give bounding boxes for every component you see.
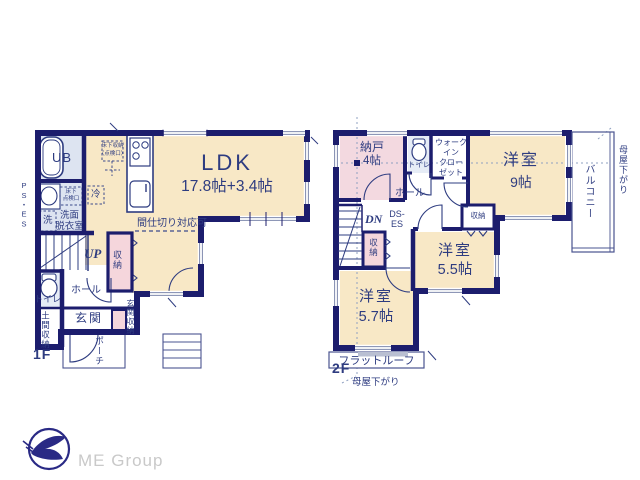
- stairs-2f: [338, 207, 362, 266]
- toilet-icon-2f: [412, 139, 426, 161]
- label-laundry: 洗: [43, 216, 53, 226]
- label-room57-size: 5.7帖: [345, 310, 407, 325]
- label-closet-1f: 収納: [112, 250, 121, 270]
- label-underfloor-storage-2: （点検口）: [98, 151, 127, 158]
- label-unit-bath: UB: [52, 151, 80, 164]
- entrance-storage-box: [112, 310, 126, 331]
- label-stairs-down: DN: [365, 213, 382, 225]
- floor1-tag: 1F: [33, 347, 51, 361]
- label-room9-name: 洋室: [490, 153, 552, 169]
- room55-door-arc: [418, 205, 442, 229]
- label-underfloor-storage-1: 床下収納: [98, 143, 127, 150]
- label-hall-1f: ホール: [68, 286, 104, 296]
- label-toilet-2f: トイレ: [405, 161, 433, 169]
- label-wic-1: ウォーク: [433, 138, 469, 148]
- label-eaves-right: 母屋下がり: [618, 145, 627, 195]
- label-ldk-name: LDK: [172, 152, 282, 174]
- label-wic-2: イン: [433, 148, 469, 158]
- label-stairs-up: UP: [84, 247, 101, 260]
- label-wic-3: クロー: [433, 158, 469, 168]
- label-closet-2f: 収納: [369, 238, 378, 257]
- label-partition-note: 間仕切り対応可: [137, 219, 207, 229]
- label-wic-4: ゼット: [433, 168, 469, 178]
- label-washroom-2: 脱衣室: [53, 221, 86, 232]
- bird-icon: [31, 436, 66, 460]
- company-logo-icon: [23, 429, 69, 469]
- label-eaves-bottom: 母屋下がり: [352, 378, 400, 388]
- label-porch: ポーチ: [94, 336, 103, 366]
- label-hall-2f: ホール: [392, 189, 428, 199]
- label-closet-9jo: 収納: [464, 212, 492, 220]
- label-entrance: 玄関: [66, 312, 112, 324]
- label-toilet-1f: トイレ: [34, 295, 61, 304]
- label-balcony: バルコニー: [583, 164, 593, 219]
- room-ldk-annex: [132, 233, 203, 293]
- room-55jo: [413, 232, 494, 289]
- label-room57-name: 洋室: [345, 289, 407, 304]
- label-pipe-space: PS・ES: [20, 181, 28, 230]
- label-storeroom-name: 納戸: [344, 141, 400, 153]
- porch-area: [63, 334, 201, 368]
- label-doma-storage: 土間収納: [41, 311, 50, 349]
- kitchen-sink-icon: [130, 181, 150, 207]
- stairs-1f: [40, 233, 88, 271]
- label-refrigerator: 冷: [91, 190, 101, 200]
- washbasin-icon: [38, 184, 60, 209]
- company-name: ME Group: [78, 451, 163, 471]
- label-washroom-1: 洗面: [53, 210, 86, 221]
- label-room9-size: 9帖: [490, 175, 552, 189]
- exterior-steps: [163, 334, 201, 368]
- label-ldk-size: 17.8帖+3.4帖: [157, 179, 297, 195]
- label-room55-name: 洋室: [424, 243, 486, 258]
- floorplan-canvas: UB 床下収納 （点検口） 床下 点検口 冷 洗 洗面 脱衣室 PS・ES LD…: [0, 0, 640, 480]
- label-storeroom-size: 4帖: [344, 156, 400, 168]
- floorplan-drawing: [0, 0, 640, 480]
- floor2-tag: 2F: [332, 361, 350, 375]
- kitchen-counter-icon: [127, 134, 153, 212]
- room9-door-arc: [444, 183, 468, 207]
- label-room55-size: 5.5帖: [424, 263, 486, 278]
- label-entrance-storage: 玄関収納: [126, 299, 134, 335]
- label-duct-2: ES: [385, 220, 409, 230]
- label-underfloor-hatch-2: 点検口: [59, 196, 83, 203]
